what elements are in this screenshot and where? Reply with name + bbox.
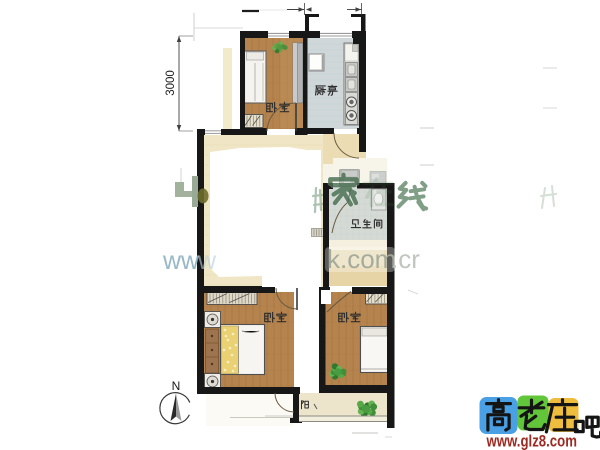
svg-text:ww: ww [162, 247, 200, 275]
svg-text:3000: 3000 [165, 70, 177, 96]
svg-text:www.glz8.com: www.glz8.com [486, 432, 577, 450]
svg-text:N: N [172, 379, 181, 393]
svg-text:k.com: k.com [327, 244, 396, 274]
svg-text:.cr: .cr [391, 244, 420, 274]
svg-text:w: w [197, 247, 217, 275]
